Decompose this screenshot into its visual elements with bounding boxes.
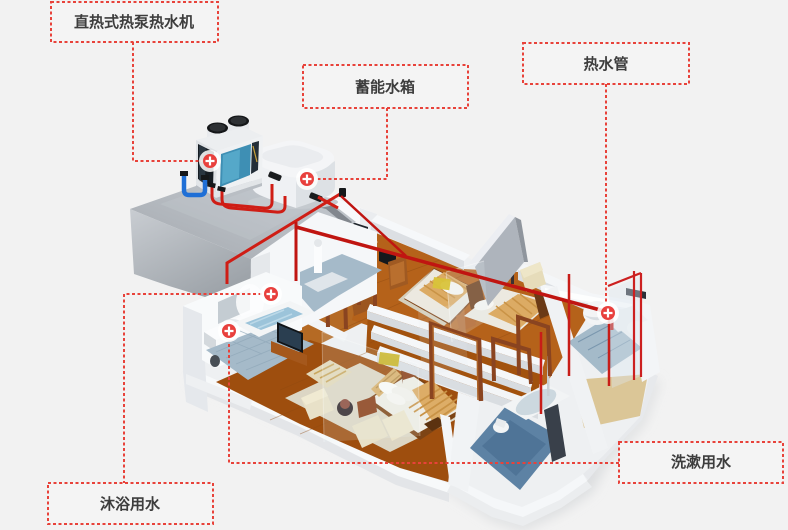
svg-text:热水管: 热水管 bbox=[583, 55, 628, 73]
svg-text:洗漱用水: 洗漱用水 bbox=[671, 453, 732, 471]
svg-text:蓄能水箱: 蓄能水箱 bbox=[355, 78, 415, 96]
svg-text:沐浴用水: 沐浴用水 bbox=[100, 495, 161, 513]
svg-text:直热式热泵热水机: 直热式热泵热水机 bbox=[74, 13, 194, 31]
